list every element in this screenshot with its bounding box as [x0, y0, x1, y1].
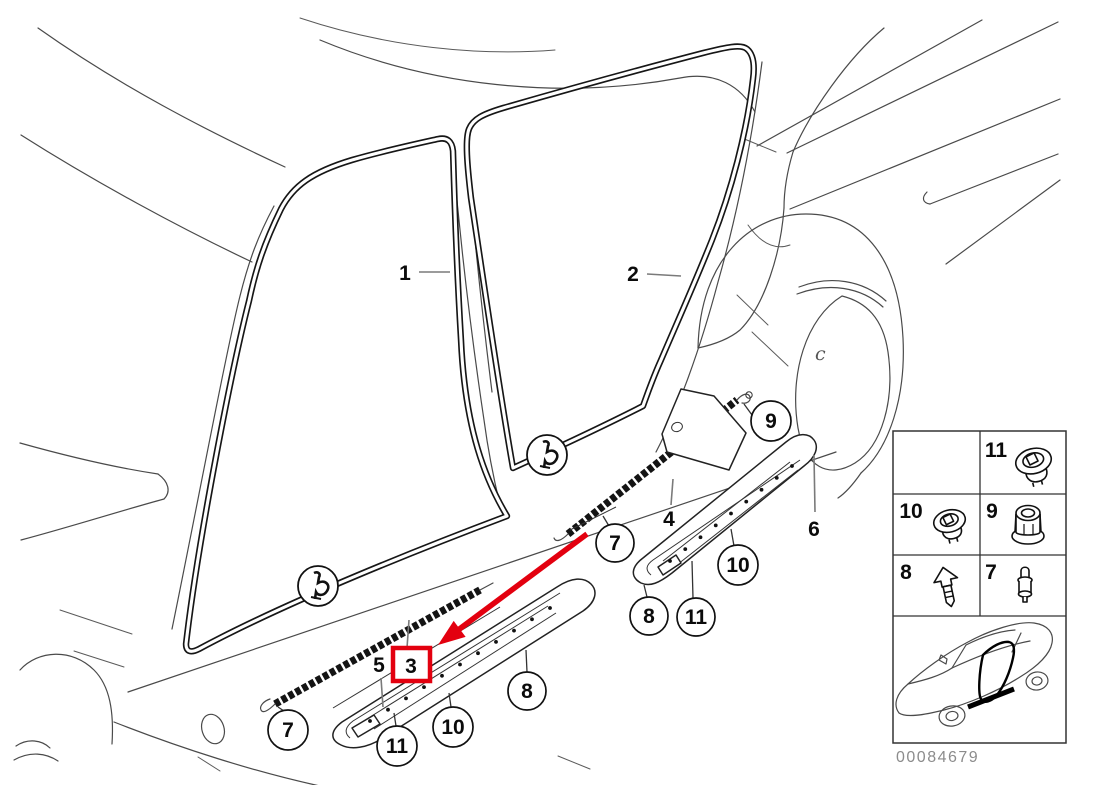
c-pillar-line [784, 28, 884, 208]
part-label-10-rear[interactable]: 10 [726, 554, 749, 577]
fastener-dot [440, 674, 444, 678]
front-strip-top-tail [480, 583, 493, 590]
sill-strip-bracket [662, 389, 746, 470]
part-label-8-front[interactable]: 8 [521, 680, 533, 703]
fender-crease-1 [60, 610, 132, 634]
seal-cross-section-detail-front [298, 566, 338, 606]
rear-cover-channel-1 [663, 462, 790, 561]
leader-line-3 [407, 620, 409, 648]
front-bumper-line-2 [14, 754, 58, 761]
fastener-dot [729, 512, 733, 516]
trunk-line [790, 99, 1060, 209]
part-label-8-rear[interactable]: 8 [643, 605, 655, 628]
rear-tire-top-1 [799, 281, 886, 301]
quarter-sketch-4 [752, 332, 788, 366]
part-label-7-rear[interactable]: 7 [609, 532, 621, 555]
legend-label-8[interactable]: 8 [900, 561, 912, 584]
fastener-dot [760, 488, 764, 492]
part-label-11-rear[interactable]: 11 [685, 606, 708, 629]
leader-line-6 [814, 455, 815, 512]
fastener-dot [790, 464, 794, 468]
part-label-2[interactable]: 2 [627, 263, 639, 286]
leader-line-8-rear [644, 585, 647, 597]
fastener-dot [683, 547, 687, 551]
fastener-dot [476, 651, 480, 655]
front-wheel-arch [20, 654, 112, 744]
sketch-dash-2 [558, 756, 590, 769]
legend-label-10[interactable]: 10 [899, 500, 922, 523]
leader-line-10-rear [731, 529, 734, 546]
leader-line-9 [744, 404, 752, 415]
front-strip-end-hook [261, 699, 275, 712]
part-label-1[interactable]: 1 [399, 262, 411, 285]
fastener-dot [530, 617, 534, 621]
seal-cross-section-detail-rear [527, 435, 567, 475]
fastener-dot [699, 535, 703, 539]
quarter-sketch-3 [737, 295, 768, 325]
leader-line-2 [647, 274, 681, 276]
hood-line-2 [21, 499, 164, 540]
leader-line-11-rear [692, 561, 693, 598]
fastener-legend: 1110987 00084679 [893, 431, 1066, 766]
rear-deck-line-2 [787, 22, 1058, 153]
rear-strip-end-hook [554, 534, 568, 541]
legend-label-9[interactable]: 9 [986, 500, 998, 523]
windshield-base-line [21, 135, 252, 262]
fastener-dot [714, 523, 718, 527]
diagram-part-number: 00084679 [896, 749, 979, 766]
fastener-dot [512, 629, 516, 633]
fastener-dot [494, 640, 498, 644]
legend-label-11[interactable]: 11 [985, 439, 1008, 462]
rear-bumper-line-2 [946, 180, 1060, 264]
part-label-6[interactable]: 6 [808, 518, 820, 541]
fastener-dot [744, 500, 748, 504]
part-label-5[interactable]: 5 [373, 654, 385, 677]
part-label-9[interactable]: 9 [765, 410, 777, 433]
wheel-center-mark: c [815, 343, 826, 365]
fastener-dot [775, 476, 779, 480]
hood-line-1 [20, 443, 158, 474]
fender-crease-2 [74, 651, 124, 667]
fastener-dot [548, 606, 552, 610]
fastener-dot [368, 719, 372, 723]
rear-deck-line-1 [757, 20, 982, 146]
leader-line-4 [671, 479, 673, 505]
fastener-dot [422, 685, 426, 689]
flange-nut-icon [1012, 506, 1044, 545]
quarter-panel-line [698, 208, 784, 348]
parts-diagram-page: c [0, 0, 1106, 785]
fastener-dot [386, 708, 390, 712]
fastener-dot [404, 697, 408, 701]
cowl-join-line [158, 474, 168, 499]
front-bumper-line-1 [16, 741, 50, 748]
rear-strip-tip-hook [737, 394, 750, 403]
part-label-3[interactable]: 3 [405, 655, 417, 678]
rear-arch-skirt [838, 473, 861, 498]
legend-label-7[interactable]: 7 [985, 561, 997, 584]
part-label-7-front[interactable]: 7 [282, 719, 294, 742]
rear-bumper-line-1 [930, 154, 1058, 204]
fastener-dot [668, 559, 672, 563]
jack-hole [198, 711, 228, 746]
part-label-11-front[interactable]: 11 [386, 735, 409, 758]
parts-diagram-canvas: c [0, 0, 1106, 785]
fastener-dot [458, 663, 462, 667]
a-pillar-line [38, 28, 285, 167]
part-label-4[interactable]: 4 [663, 508, 675, 531]
rear-bumper-join [923, 192, 930, 204]
part-label-10-front[interactable]: 10 [441, 716, 464, 739]
leader-line-8-front [526, 650, 527, 672]
quarter-sketch-1 [742, 138, 776, 152]
